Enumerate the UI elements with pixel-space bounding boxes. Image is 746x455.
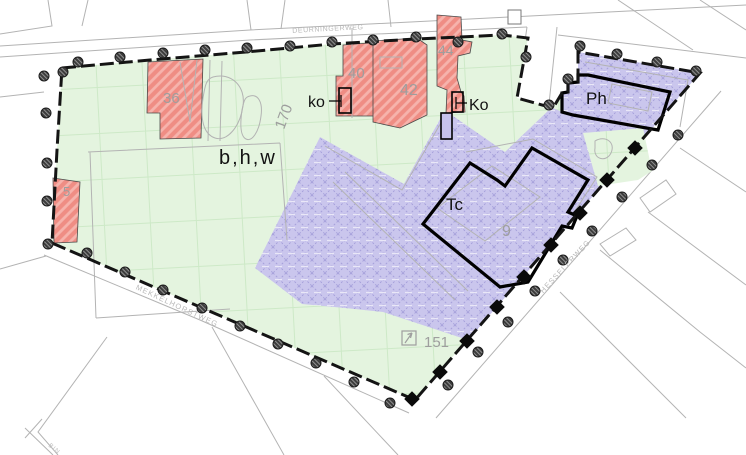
zone-label-ph: Ph [586, 89, 607, 108]
boundary-marker-circle [242, 43, 252, 53]
boundary-marker-circle [691, 66, 701, 76]
boundary-marker-circle [647, 160, 657, 170]
boundary-marker-circle [652, 57, 662, 67]
boundary-marker-circle [587, 226, 597, 236]
zoning-map: DEURNINGERWEG MEKKELHORSTWEG HESSELERWEG… [0, 0, 746, 455]
zone-label-ko-small: ko [308, 94, 325, 111]
boundary-marker-circle [453, 37, 463, 47]
boundary-marker-circle [58, 67, 68, 77]
boundary-marker-circle [158, 48, 168, 58]
boundary-marker-circle [43, 239, 53, 249]
zone-label-bhw: b,h,w [219, 147, 277, 169]
boundary-marker-circle [73, 57, 83, 67]
road-building-rect [508, 10, 521, 24]
boundary-marker-circle [41, 108, 51, 118]
zone-label-ko-large: Ko [469, 97, 489, 114]
boundary-marker-circle [42, 158, 52, 168]
boundary-marker-circle [235, 321, 245, 331]
boundary-marker-circle [349, 377, 359, 387]
street-name-deurningerweg: DEURNINGERWEG [292, 24, 364, 35]
boundary-marker-circle [503, 317, 513, 327]
boundary-marker-circle [200, 45, 210, 55]
parcel-number-40: 40 [348, 65, 365, 82]
boundary-marker-circle [673, 130, 683, 140]
boundary-marker-circle [273, 339, 283, 349]
boundary-marker-circle [327, 37, 337, 47]
boundary-marker-circle [544, 100, 554, 110]
parcel-number-42: 42 [400, 82, 418, 99]
boundary-marker-circle [311, 358, 321, 368]
boundary-marker-circle [120, 267, 130, 277]
boundary-marker-circle [563, 74, 573, 84]
parcel-number-44: 44 [438, 42, 454, 58]
boundary-marker-circle [575, 41, 585, 51]
parcel-number-151: 151 [424, 334, 449, 351]
street-name-partial-bin: BIN [47, 442, 62, 455]
boundary-marker-circle [39, 71, 49, 81]
zoning-map-canvas: DEURNINGERWEG MEKKELHORSTWEG HESSELERWEG… [0, 0, 746, 455]
boundary-marker-circle [473, 347, 483, 357]
purple-structure-rect [441, 113, 452, 139]
boundary-marker-circle [521, 52, 531, 62]
boundary-marker-circle [617, 192, 627, 202]
parcel-number-5: 5 [63, 184, 70, 199]
boundary-marker-circle [411, 32, 421, 42]
boundary-marker-circle [612, 49, 622, 59]
boundary-marker-circle [497, 29, 507, 39]
boundary-marker-circle [42, 196, 52, 206]
boundary-marker-circle [115, 52, 125, 62]
parcel-number-9: 9 [502, 223, 511, 240]
boundary-marker-circle [443, 380, 453, 390]
boundary-marker-circle [285, 41, 295, 51]
boundary-marker-circle [368, 35, 378, 45]
boundary-marker-circle [82, 248, 92, 258]
zone-label-tc: Tc [446, 195, 464, 214]
boundary-marker-circle [385, 398, 395, 408]
parcel-number-36: 36 [163, 90, 180, 107]
